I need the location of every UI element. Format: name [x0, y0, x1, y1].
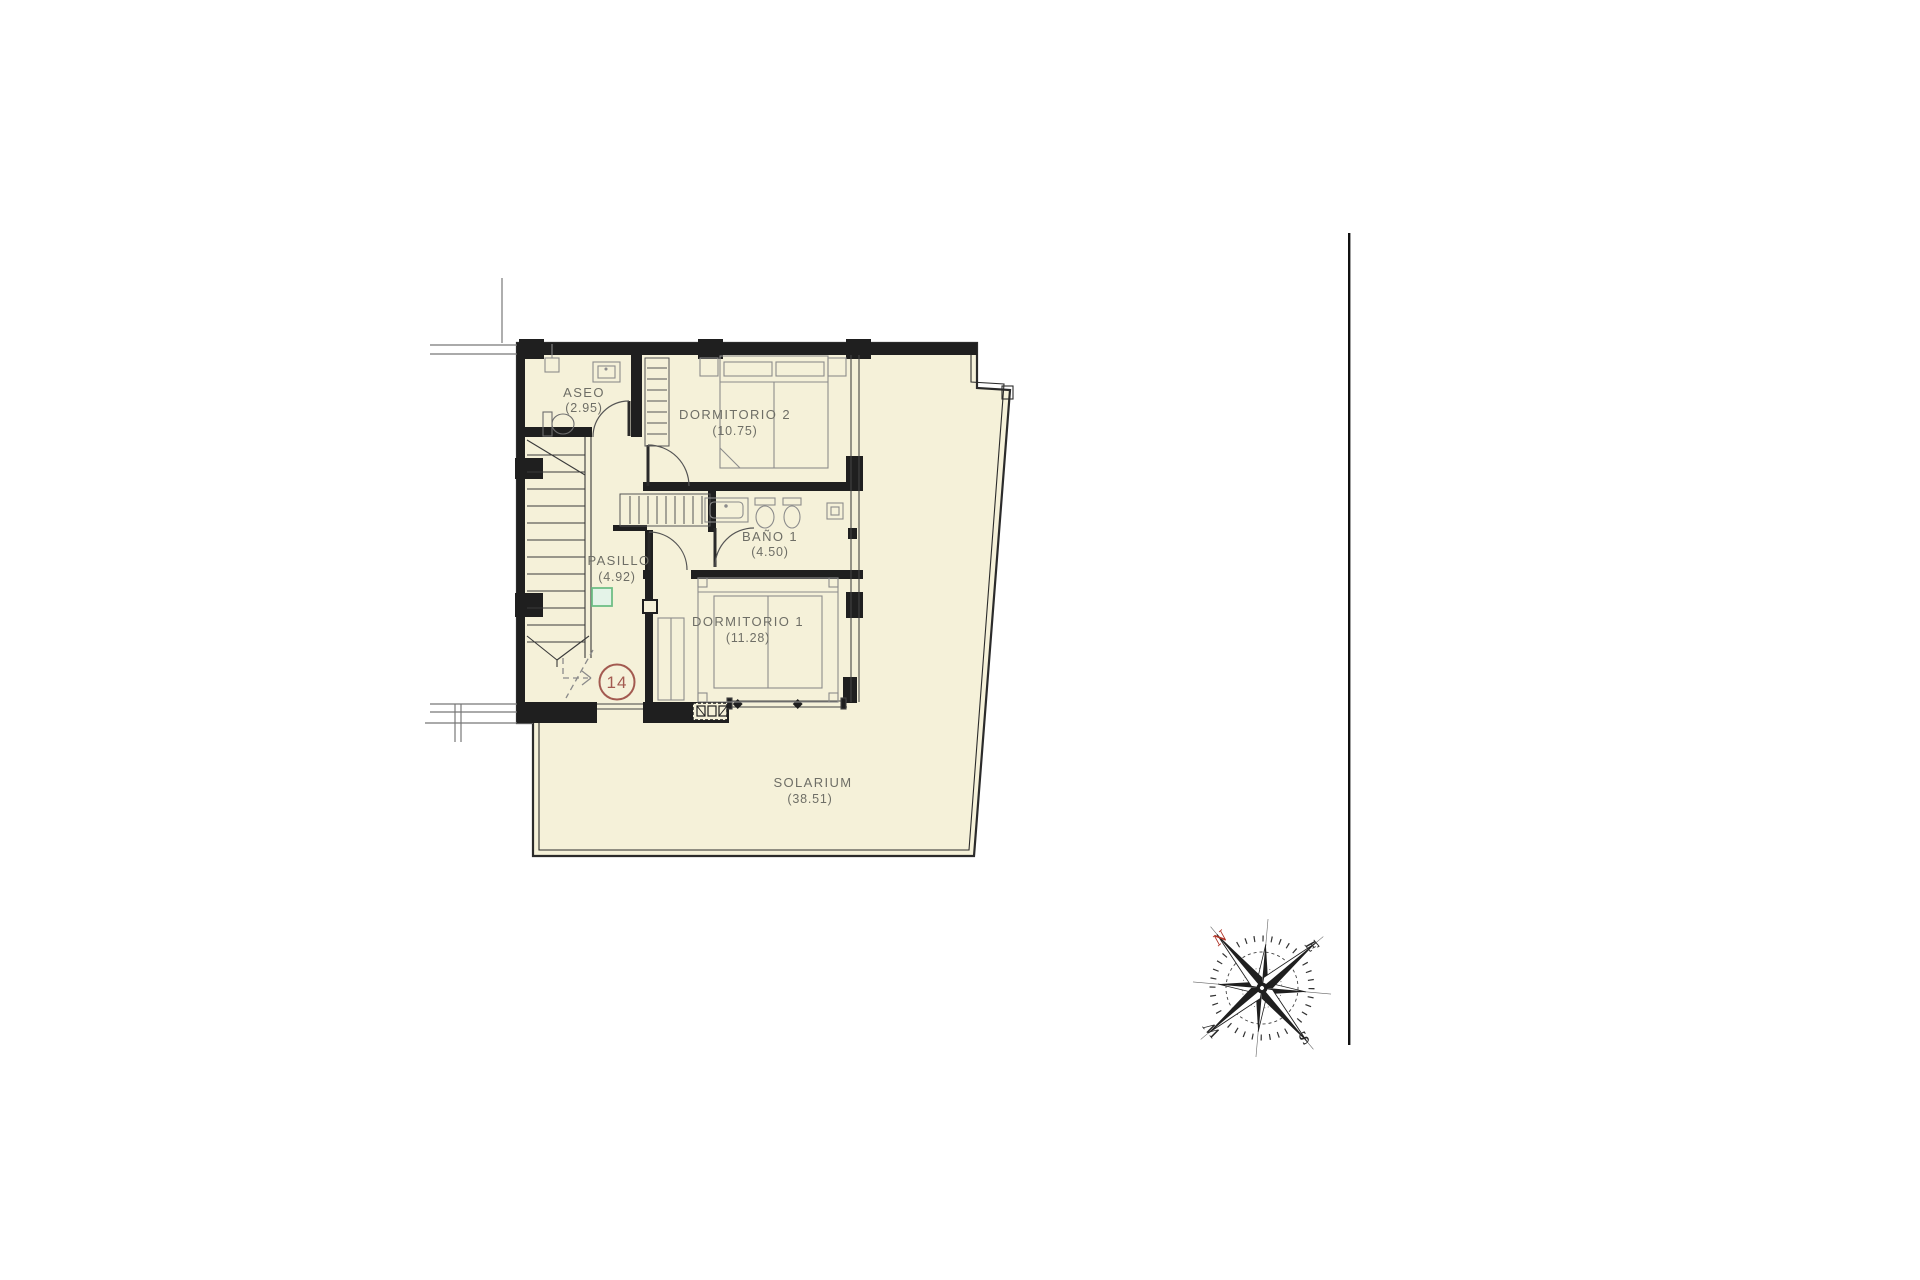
- floor-plan: 14 ASEO (2.95) DORMITORIO 2 (10.75) BAÑO…: [425, 278, 1013, 856]
- room-label-pasillo: PASILLO: [587, 553, 650, 568]
- floor-plan-page: 14 ASEO (2.95) DORMITORIO 2 (10.75) BAÑO…: [0, 0, 1920, 1280]
- room-label-aseo: ASEO: [563, 385, 605, 400]
- page-separator-line: [1348, 233, 1350, 1045]
- room-area-bano1: (4.50): [751, 545, 788, 559]
- room-label-bano1: BAÑO 1: [742, 529, 798, 544]
- room-label-dormitorio2: DORMITORIO 2: [679, 407, 791, 422]
- room-label-dormitorio1: DORMITORIO 1: [692, 614, 804, 629]
- floor-plan-canvas: 14 ASEO (2.95) DORMITORIO 2 (10.75) BAÑO…: [0, 0, 1920, 1280]
- room-area-aseo: (2.95): [565, 401, 602, 415]
- room-area-pasillo: (4.92): [598, 570, 635, 584]
- room-area-dormitorio2: (10.75): [712, 424, 757, 438]
- compass-rose-icon: N E S W: [1149, 875, 1374, 1100]
- room-area-solarium: (38.51): [787, 792, 832, 806]
- wall-box: [643, 600, 657, 613]
- room-label-solarium: SOLARIUM: [773, 775, 852, 790]
- green-marker: [592, 588, 612, 606]
- room-area-dormitorio1: (11.28): [726, 631, 770, 645]
- utility-box: [693, 703, 727, 720]
- unit-badge-number: 14: [607, 673, 628, 692]
